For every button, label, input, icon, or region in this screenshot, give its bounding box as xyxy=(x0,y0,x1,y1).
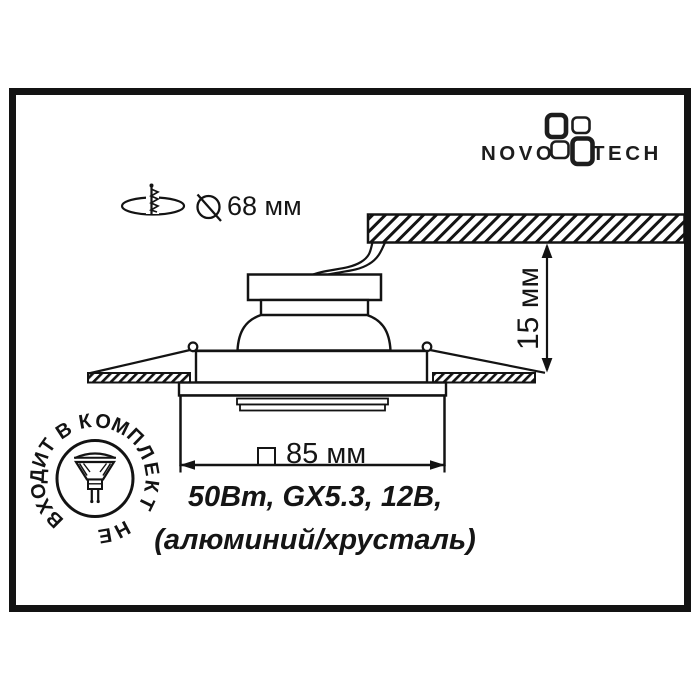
square-symbol xyxy=(257,447,276,466)
cutout-hole-icon xyxy=(122,183,184,215)
supply-wire xyxy=(307,243,385,278)
depth-dimension-label: 15 мм xyxy=(512,268,546,350)
fixture-housing xyxy=(238,275,391,351)
lamp-holder-block xyxy=(261,300,368,316)
ceiling-panel xyxy=(368,215,685,243)
width-dimension-label: 85 мм xyxy=(286,438,366,471)
reflector-dome xyxy=(238,315,391,351)
spec-line-2: (алюминий/хрусталь) xyxy=(95,526,535,555)
arrowhead-up xyxy=(542,244,553,259)
diagram-page: NOVO TECH 68 мм 15 мм 85 мм 50Вт, GX5.3,… xyxy=(0,0,700,700)
brand-wordmark-right: TECH xyxy=(592,142,662,166)
collar xyxy=(196,351,427,383)
flange xyxy=(179,383,446,396)
stamp-ring-letter: Е xyxy=(92,521,118,548)
fixture-drawing xyxy=(0,0,700,700)
brand-wordmark-left: NOVO xyxy=(481,142,555,166)
arrowhead-down xyxy=(542,358,553,373)
cutout-diameter-label: 68 мм xyxy=(227,191,302,222)
glass-slot-inner xyxy=(240,405,385,411)
diameter-icon xyxy=(198,195,222,222)
width-dimension-label-row: 85 мм xyxy=(257,438,366,471)
terminal-box xyxy=(248,275,381,301)
